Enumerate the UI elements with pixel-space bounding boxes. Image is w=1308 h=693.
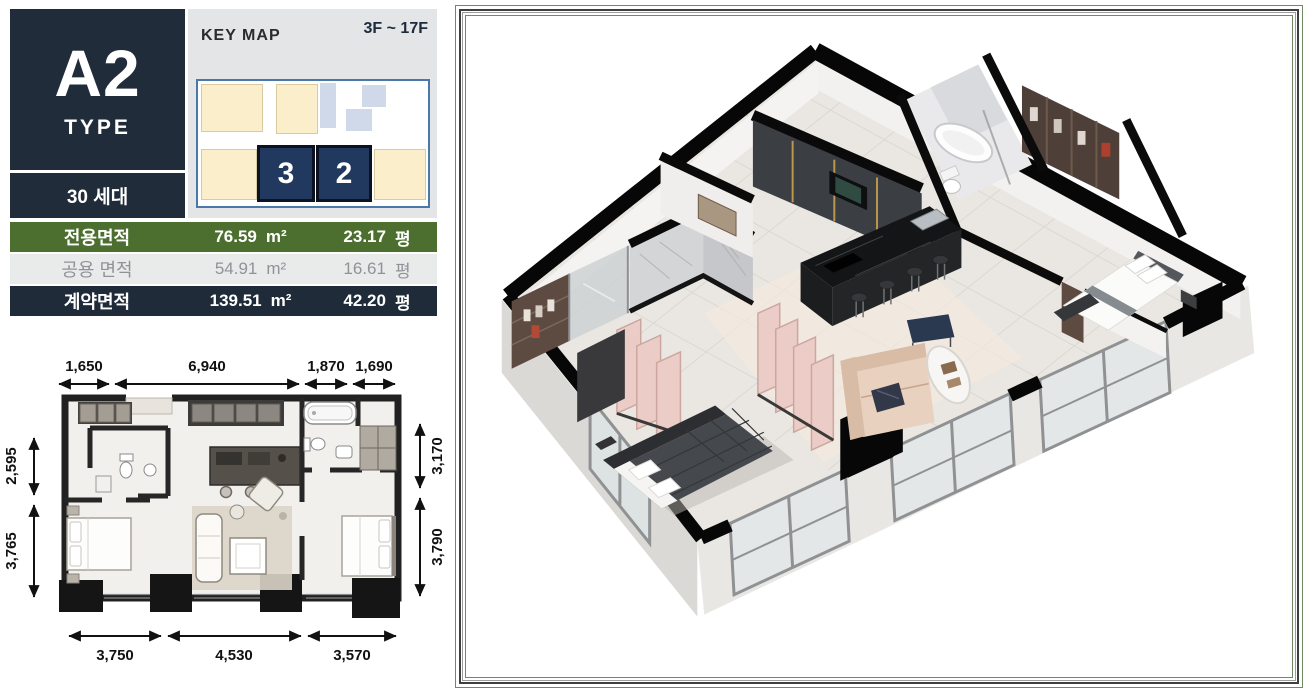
dim-top-2: 6,940 <box>188 358 226 375</box>
dim-top-3: 1,870 <box>307 358 345 375</box>
keymap-block <box>276 84 318 134</box>
dim-right-1: 3,170 <box>429 437 446 475</box>
row-label: 공용 면적 <box>10 254 184 284</box>
table-row-exclusive-area: 전용면적 76.59 m² 23.17 평 <box>10 222 437 252</box>
row-area-pyeong: 23.17 평 <box>317 222 437 252</box>
value: 76.59 <box>214 227 257 247</box>
keymap-block <box>320 83 336 128</box>
row-area-pyeong: 42.20 평 <box>317 286 437 316</box>
table-row-contract-area: 계약면적 139.51 m² 42.20 평 <box>10 286 437 316</box>
unit-type-card: A2 TYPE <box>10 9 185 170</box>
value: 42.20 <box>343 291 386 311</box>
row-area-m2: 139.51 m² <box>187 286 314 316</box>
brochure-page: A2 TYPE 30 세대 KEY MAP 3F ~ 17F 3 2 전용면적 <box>0 0 1308 693</box>
dim-left-1: 2,595 <box>3 447 20 485</box>
unit-code: A2 <box>54 40 140 106</box>
unit: 평 <box>395 225 411 250</box>
unit: m² <box>266 227 287 247</box>
keymap-unit-2: 2 <box>316 145 372 202</box>
area-table: 전용면적 76.59 m² 23.17 평 공용 면적 54.91 m² 16.… <box>10 222 437 318</box>
row-area-pyeong: 16.61 평 <box>317 254 437 284</box>
render-3d-frame <box>455 5 1303 688</box>
dim-bottom-3: 3,570 <box>333 647 371 664</box>
row-area-m2: 54.91 m² <box>187 254 314 284</box>
floor-plan-2d: 1,650 6,940 1,870 1,690 3,750 4,530 3,57… <box>0 350 455 693</box>
unit-type-label: TYPE <box>64 116 131 140</box>
floor-plan-3d-render <box>466 16 1292 677</box>
dim-bottom-2: 4,530 <box>215 647 253 664</box>
keymap-block <box>374 149 426 200</box>
dim-top-4: 1,690 <box>355 358 393 375</box>
keymap-block <box>201 84 263 132</box>
unit: 평 <box>395 289 411 314</box>
value: 16.61 <box>343 259 386 279</box>
keymap-unit-3-label: 3 <box>278 157 295 191</box>
unit: 평 <box>395 257 411 282</box>
dim-right-2: 3,790 <box>429 528 446 566</box>
row-area-m2: 76.59 m² <box>187 222 314 252</box>
value: 139.51 <box>210 291 262 311</box>
keymap-block <box>362 85 386 107</box>
unit: m² <box>266 259 286 279</box>
value: 23.17 <box>343 227 386 247</box>
keymap-floor-range: 3F ~ 17F <box>364 20 428 38</box>
keymap-diagram: 3 2 <box>196 79 430 208</box>
keymap-panel: KEY MAP 3F ~ 17F 3 2 <box>188 9 437 218</box>
dim-top-1: 1,650 <box>65 358 103 375</box>
keymap-unit-3: 3 <box>257 145 315 202</box>
keymap-block <box>346 109 372 131</box>
keymap-title: KEY MAP <box>201 27 281 45</box>
row-label: 계약면적 <box>10 286 184 316</box>
dim-bottom-1: 3,750 <box>96 647 134 664</box>
keymap-unit-2-label: 2 <box>336 157 353 191</box>
row-label: 전용면적 <box>10 222 184 252</box>
value: 54.91 <box>215 259 258 279</box>
households-badge: 30 세대 <box>10 173 185 218</box>
table-row-common-area: 공용 면적 54.91 m² 16.61 평 <box>10 254 437 284</box>
dim-left-2: 3,765 <box>3 532 20 570</box>
unit: m² <box>271 291 292 311</box>
keymap-block <box>201 149 257 200</box>
